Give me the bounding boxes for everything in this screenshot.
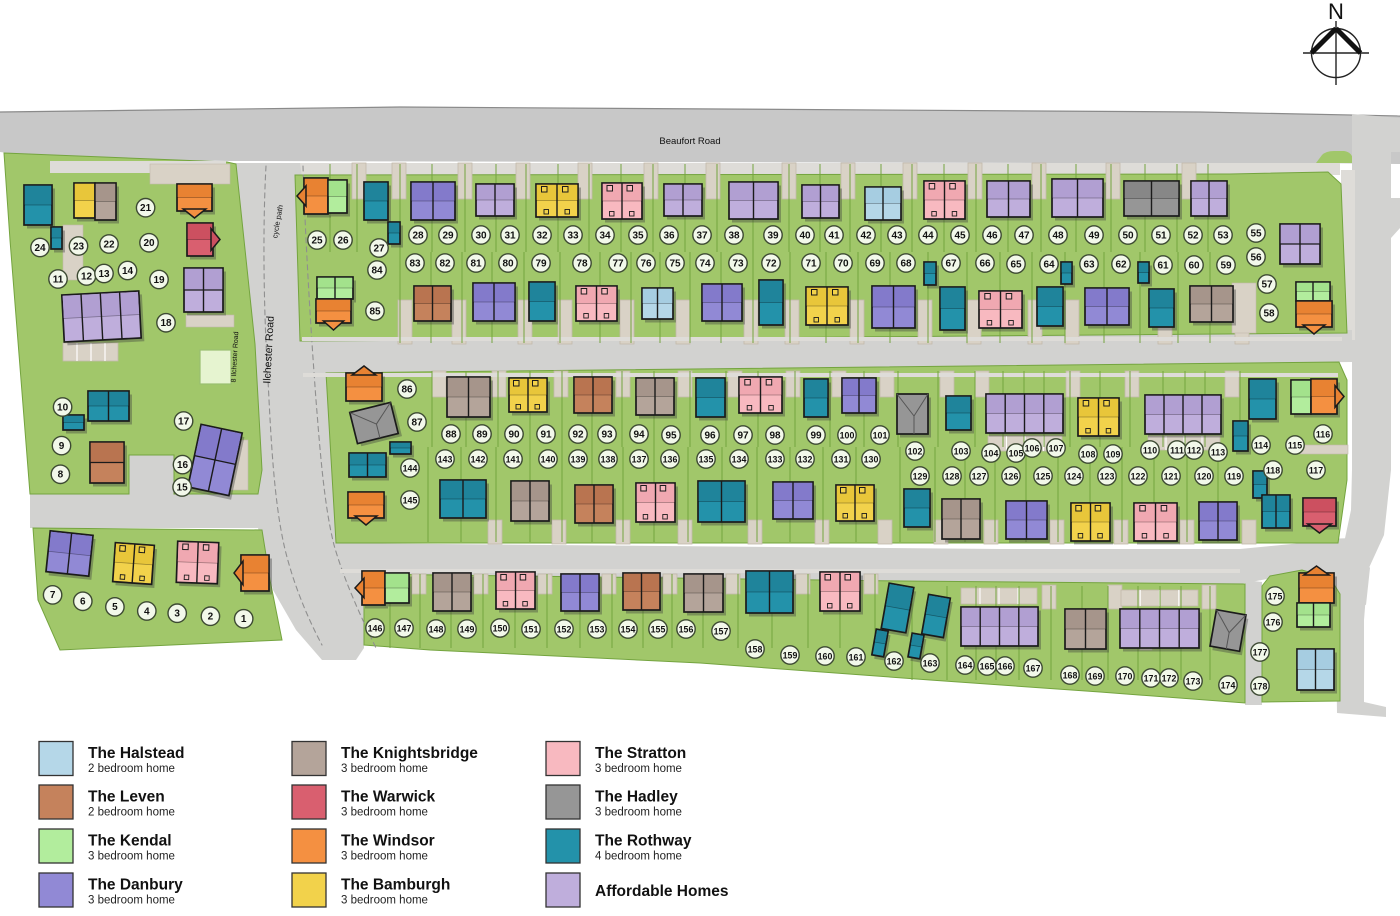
svg-text:80: 80 [502, 258, 514, 269]
svg-text:168: 168 [1063, 670, 1078, 680]
svg-text:89: 89 [476, 429, 488, 440]
svg-text:156: 156 [679, 624, 694, 634]
svg-text:3 bedroom home: 3 bedroom home [341, 851, 428, 863]
svg-text:159: 159 [783, 650, 798, 660]
svg-text:171: 171 [1144, 673, 1159, 683]
svg-text:3 bedroom home: 3 bedroom home [88, 851, 175, 863]
svg-text:27: 27 [373, 243, 385, 254]
svg-text:67: 67 [945, 258, 957, 269]
svg-text:109: 109 [1106, 449, 1121, 459]
svg-text:18: 18 [160, 318, 172, 329]
svg-text:88: 88 [445, 429, 457, 440]
svg-text:115: 115 [1288, 440, 1302, 450]
svg-text:170: 170 [1118, 671, 1133, 681]
svg-text:110: 110 [1143, 445, 1157, 455]
svg-text:41: 41 [828, 230, 840, 241]
svg-text:175: 175 [1268, 591, 1283, 601]
svg-text:45: 45 [954, 230, 966, 241]
svg-text:23: 23 [73, 241, 85, 252]
svg-text:147: 147 [397, 623, 412, 633]
svg-text:50: 50 [1122, 230, 1134, 241]
svg-text:57: 57 [1261, 279, 1273, 290]
svg-text:120: 120 [1197, 471, 1212, 481]
svg-text:35: 35 [632, 230, 644, 241]
svg-text:2 bedroom home: 2 bedroom home [88, 763, 175, 775]
svg-text:141: 141 [506, 454, 521, 464]
svg-text:3: 3 [174, 609, 180, 620]
svg-text:10: 10 [57, 402, 69, 413]
svg-text:96: 96 [704, 430, 716, 441]
svg-text:33: 33 [567, 230, 579, 241]
svg-text:150: 150 [493, 623, 508, 633]
svg-text:114: 114 [1254, 440, 1268, 450]
svg-text:12: 12 [81, 271, 93, 282]
svg-text:43: 43 [891, 230, 903, 241]
svg-text:112: 112 [1187, 445, 1201, 455]
svg-text:13: 13 [98, 269, 110, 280]
svg-text:25: 25 [311, 235, 323, 246]
svg-text:39: 39 [767, 230, 779, 241]
svg-text:The Warwick: The Warwick [341, 789, 436, 806]
svg-text:74: 74 [699, 258, 711, 269]
svg-text:127: 127 [972, 471, 987, 481]
svg-text:177: 177 [1253, 647, 1268, 657]
svg-text:111: 111 [1170, 445, 1184, 455]
svg-text:21: 21 [140, 203, 152, 214]
svg-text:The Stratton: The Stratton [595, 745, 686, 762]
svg-text:81: 81 [470, 258, 482, 269]
svg-text:46: 46 [986, 230, 998, 241]
svg-text:4 bedroom home: 4 bedroom home [595, 851, 682, 863]
svg-text:30: 30 [475, 230, 487, 241]
svg-text:152: 152 [557, 624, 572, 634]
svg-text:129: 129 [913, 471, 928, 481]
svg-text:72: 72 [765, 258, 777, 269]
svg-text:28: 28 [412, 230, 424, 241]
svg-text:82: 82 [439, 258, 451, 269]
svg-text:122: 122 [1131, 471, 1146, 481]
svg-text:136: 136 [663, 454, 678, 464]
svg-text:The Rothway: The Rothway [595, 833, 692, 850]
svg-text:139: 139 [571, 454, 586, 464]
svg-text:4: 4 [144, 606, 150, 617]
svg-text:15: 15 [177, 482, 189, 493]
svg-text:117: 117 [1309, 465, 1323, 475]
svg-text:40: 40 [799, 230, 811, 241]
svg-text:73: 73 [732, 258, 744, 269]
svg-text:3 bedroom home: 3 bedroom home [341, 895, 428, 907]
svg-text:128: 128 [945, 471, 960, 481]
svg-text:58: 58 [1263, 308, 1275, 319]
svg-text:94: 94 [633, 429, 645, 440]
svg-text:3 bedroom home: 3 bedroom home [341, 763, 428, 775]
svg-text:158: 158 [748, 644, 763, 654]
svg-text:70: 70 [837, 258, 849, 269]
svg-text:5: 5 [112, 602, 118, 613]
svg-text:55: 55 [1250, 228, 1262, 239]
svg-text:The Leven: The Leven [88, 789, 165, 806]
svg-text:100: 100 [840, 430, 855, 440]
svg-text:9: 9 [59, 441, 65, 452]
svg-text:37: 37 [696, 230, 708, 241]
svg-text:107: 107 [1049, 443, 1064, 453]
svg-text:48: 48 [1052, 230, 1064, 241]
svg-text:52: 52 [1187, 230, 1199, 241]
svg-text:The Windsor: The Windsor [341, 833, 435, 850]
svg-text:76: 76 [640, 258, 652, 269]
svg-text:161: 161 [849, 652, 864, 662]
svg-text:The Kendal: The Kendal [88, 833, 172, 850]
svg-text:101: 101 [873, 430, 888, 440]
svg-text:140: 140 [541, 454, 556, 464]
svg-text:3 bedroom home: 3 bedroom home [88, 895, 175, 907]
svg-text:121: 121 [1164, 471, 1179, 481]
svg-text:N: N [1328, 0, 1344, 24]
svg-text:131: 131 [834, 454, 849, 464]
svg-text:124: 124 [1067, 471, 1082, 481]
svg-text:90: 90 [508, 429, 520, 440]
svg-text:143: 143 [438, 454, 453, 464]
svg-text:145: 145 [403, 495, 418, 505]
svg-text:16: 16 [177, 460, 189, 471]
svg-text:165: 165 [980, 661, 995, 671]
svg-text:93: 93 [601, 429, 613, 440]
svg-text:8: 8 [58, 470, 64, 481]
svg-text:62: 62 [1115, 259, 1127, 270]
svg-text:160: 160 [818, 651, 833, 661]
svg-text:53: 53 [1217, 230, 1229, 241]
svg-text:3 bedroom home: 3 bedroom home [595, 763, 682, 775]
svg-text:36: 36 [663, 230, 675, 241]
svg-text:The Hadley: The Hadley [595, 789, 678, 806]
svg-text:60: 60 [1188, 260, 1200, 271]
svg-text:87: 87 [411, 417, 423, 428]
svg-text:123: 123 [1100, 471, 1115, 481]
svg-text:64: 64 [1043, 259, 1055, 270]
svg-text:32: 32 [536, 230, 548, 241]
svg-text:56: 56 [1250, 252, 1262, 263]
svg-text:6: 6 [80, 597, 86, 608]
svg-text:162: 162 [887, 656, 902, 666]
svg-text:137: 137 [632, 454, 647, 464]
svg-text:34: 34 [599, 230, 611, 241]
svg-text:103: 103 [954, 446, 969, 456]
svg-text:95: 95 [665, 430, 677, 441]
svg-text:148: 148 [429, 624, 444, 634]
svg-text:146: 146 [368, 623, 383, 633]
svg-text:176: 176 [1266, 617, 1281, 627]
svg-text:172: 172 [1162, 673, 1177, 683]
svg-text:38: 38 [728, 230, 740, 241]
svg-text:77: 77 [612, 258, 624, 269]
svg-text:142: 142 [471, 454, 486, 464]
svg-text:65: 65 [1010, 259, 1022, 270]
svg-text:2: 2 [208, 612, 214, 623]
svg-text:167: 167 [1026, 663, 1041, 673]
svg-text:99: 99 [810, 430, 822, 441]
svg-text:164: 164 [958, 660, 973, 670]
svg-text:91: 91 [540, 429, 552, 440]
svg-text:The Bamburgh: The Bamburgh [341, 877, 450, 894]
svg-text:84: 84 [371, 265, 383, 276]
svg-text:106: 106 [1025, 443, 1040, 453]
svg-text:The Knightsbridge: The Knightsbridge [341, 745, 478, 762]
svg-text:105: 105 [1009, 448, 1024, 458]
svg-text:134: 134 [732, 454, 747, 464]
svg-text:31: 31 [504, 230, 516, 241]
svg-text:130: 130 [864, 454, 879, 464]
svg-text:3 bedroom home: 3 bedroom home [595, 807, 682, 819]
svg-text:3 bedroom home: 3 bedroom home [341, 807, 428, 819]
svg-text:68: 68 [900, 258, 912, 269]
svg-text:98: 98 [769, 430, 781, 441]
svg-text:11: 11 [53, 274, 64, 285]
svg-text:169: 169 [1088, 671, 1103, 681]
svg-text:69: 69 [869, 258, 881, 269]
svg-text:154: 154 [621, 624, 636, 634]
svg-text:19: 19 [153, 275, 165, 286]
svg-text:113: 113 [1211, 447, 1225, 457]
svg-text:92: 92 [572, 429, 584, 440]
svg-text:51: 51 [1155, 230, 1167, 241]
svg-text:The Danbury: The Danbury [88, 877, 183, 894]
svg-text:144: 144 [403, 463, 418, 473]
svg-text:83: 83 [409, 258, 421, 269]
svg-text:116: 116 [1316, 429, 1330, 439]
svg-text:17: 17 [178, 416, 190, 427]
svg-text:63: 63 [1083, 259, 1095, 270]
svg-text:71: 71 [805, 258, 817, 269]
svg-text:174: 174 [1221, 680, 1236, 690]
svg-text:108: 108 [1081, 449, 1096, 459]
svg-text:135: 135 [699, 454, 714, 464]
svg-text:14: 14 [122, 266, 134, 277]
svg-text:44: 44 [922, 230, 934, 241]
svg-text:157: 157 [714, 626, 729, 636]
svg-text:138: 138 [601, 454, 616, 464]
svg-text:20: 20 [143, 238, 155, 249]
svg-text:49: 49 [1088, 230, 1100, 241]
svg-text:126: 126 [1004, 471, 1019, 481]
svg-text:7: 7 [50, 590, 56, 601]
svg-text:163: 163 [923, 658, 938, 668]
svg-text:The Halstead: The Halstead [88, 745, 184, 762]
svg-text:166: 166 [998, 661, 1013, 671]
svg-text:Affordable Homes: Affordable Homes [595, 883, 729, 900]
svg-text:24: 24 [34, 243, 46, 254]
svg-text:178: 178 [1253, 681, 1268, 691]
svg-text:119: 119 [1227, 471, 1241, 481]
svg-text:85: 85 [369, 306, 381, 317]
svg-text:79: 79 [535, 258, 547, 269]
svg-text:97: 97 [737, 430, 749, 441]
svg-text:102: 102 [908, 446, 923, 456]
svg-text:2 bedroom home: 2 bedroom home [88, 807, 175, 819]
svg-text:125: 125 [1036, 471, 1051, 481]
svg-text:86: 86 [401, 384, 413, 395]
svg-text:155: 155 [651, 624, 666, 634]
svg-text:104: 104 [984, 448, 999, 458]
svg-text:1: 1 [241, 614, 247, 625]
svg-text:151: 151 [524, 624, 539, 634]
svg-text:118: 118 [1266, 465, 1280, 475]
svg-text:29: 29 [442, 230, 454, 241]
svg-text:59: 59 [1220, 260, 1232, 271]
svg-text:66: 66 [979, 258, 991, 269]
svg-text:47: 47 [1018, 230, 1030, 241]
svg-text:42: 42 [860, 230, 872, 241]
svg-text:61: 61 [1157, 260, 1169, 271]
svg-text:133: 133 [768, 454, 783, 464]
svg-text:173: 173 [1186, 676, 1201, 686]
svg-text:75: 75 [669, 258, 681, 269]
svg-text:132: 132 [798, 454, 813, 464]
svg-text:153: 153 [590, 624, 605, 634]
svg-text:Beaufort Road: Beaufort Road [659, 136, 720, 147]
svg-text:149: 149 [460, 624, 475, 634]
svg-text:26: 26 [337, 235, 349, 246]
svg-text:78: 78 [576, 258, 588, 269]
svg-text:22: 22 [103, 239, 115, 250]
